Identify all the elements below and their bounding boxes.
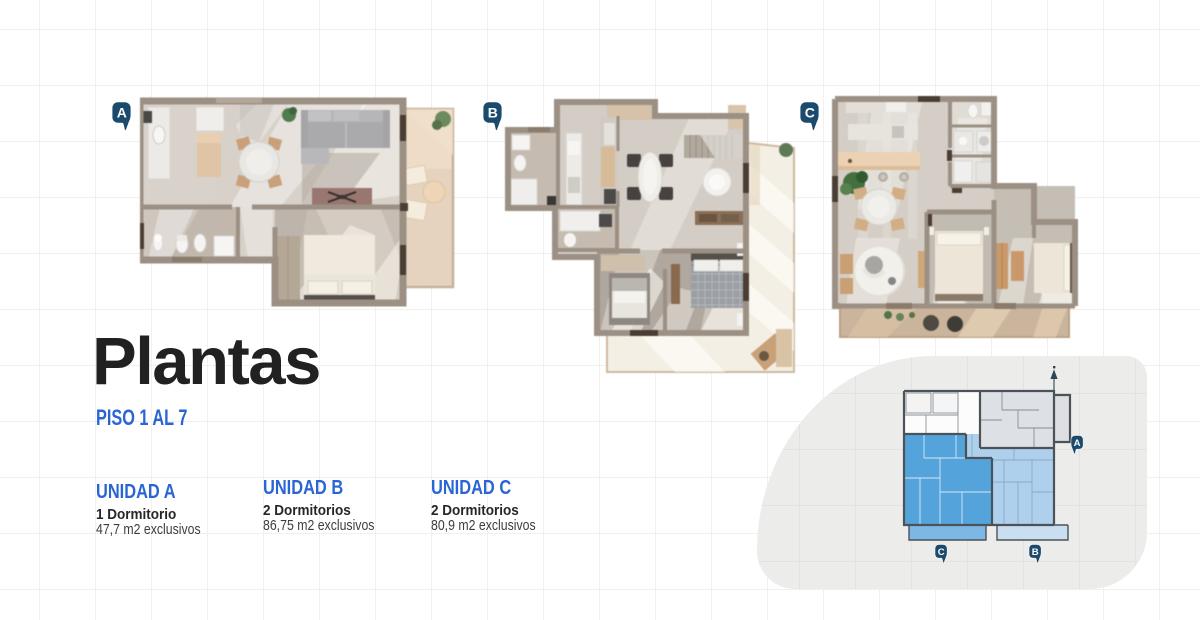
svg-text:C: C xyxy=(805,104,815,120)
svg-text:C: C xyxy=(938,547,945,558)
svg-text:A: A xyxy=(1074,438,1081,449)
svg-text:A: A xyxy=(117,104,127,120)
svg-text:B: B xyxy=(488,104,498,120)
svg-text:B: B xyxy=(1032,547,1039,558)
